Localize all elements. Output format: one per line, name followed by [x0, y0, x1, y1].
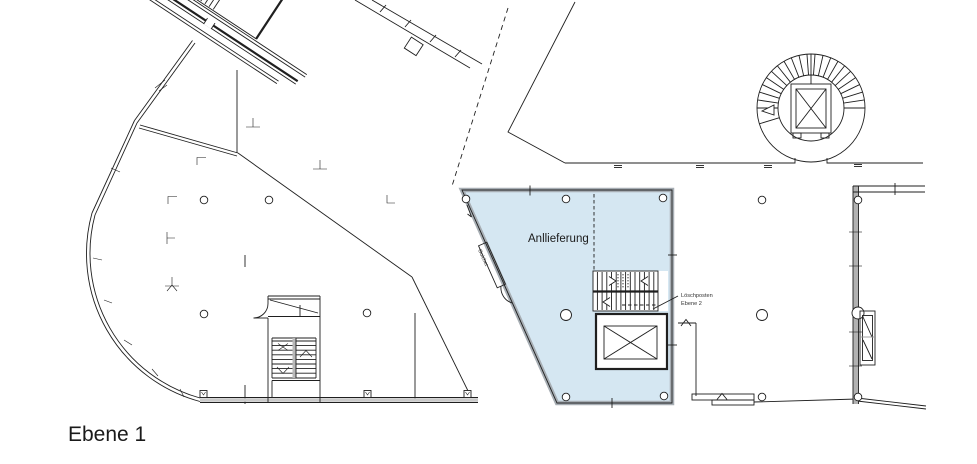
upper-wall [565, 163, 923, 168]
right-room [849, 183, 925, 404]
curved-wall [90, 215, 200, 398]
zone-stairs [593, 271, 668, 311]
zone-elevator-icon [596, 314, 667, 369]
wall-door-panel [860, 311, 875, 365]
spiral-staircase [757, 54, 865, 164]
stair-enclosure [254, 296, 321, 402]
door-swing-arc [254, 304, 269, 319]
neighbor-structure [355, 0, 482, 68]
fire-post-label-line2: Ebene 2 [681, 301, 702, 307]
upper-building-band [25, 0, 336, 95]
floor-plan-canvas: Anllieferung Guichet [0, 0, 977, 464]
stair-direction-arrow [762, 105, 774, 115]
upper-stair-block [142, 0, 284, 39]
fire-post-label-line1: Löschposten [681, 293, 713, 299]
entry-v-wall [508, 2, 575, 163]
left-hall [86, 41, 478, 405]
upper-stair-treads [146, 0, 239, 9]
spiral-elevator-icon [791, 84, 831, 138]
right-wing [678, 196, 926, 409]
enclosure-stairs [272, 338, 316, 378]
level-label: Ebene 1 [68, 423, 146, 446]
delivery-zone-label: Anllieferung [528, 233, 589, 245]
floor-plan-page: Anllieferung Guichet [0, 0, 977, 464]
bottom-wall [200, 391, 478, 403]
delivery-zone: Anllieferung Guichet [462, 186, 677, 409]
section-dashed-line [452, 8, 508, 186]
